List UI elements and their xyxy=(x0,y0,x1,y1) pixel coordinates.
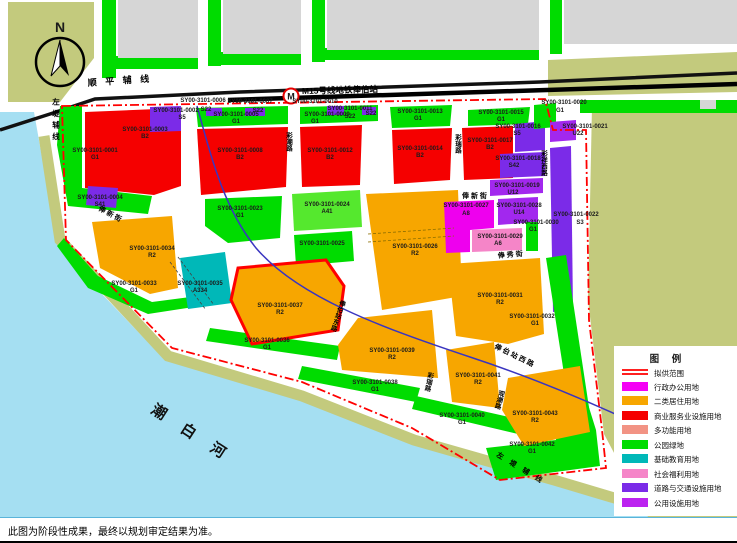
parcel-0029-code: SY00-3101-0029 xyxy=(477,234,523,240)
parcel-0003-type: B2 xyxy=(141,134,149,140)
compass-north-label: N xyxy=(55,19,65,35)
parcel-0039-code: SY00-3101-0039 xyxy=(369,348,415,354)
parcel-0011-type: S22 xyxy=(345,114,356,120)
legend-title: 图 例 xyxy=(650,353,687,365)
parcel-0038-type: G1 xyxy=(371,387,380,393)
parcel-0001-type: G1 xyxy=(91,155,100,161)
parcel-0020-code: SY00-3101-0020 xyxy=(541,100,587,106)
parcel-0024-type: A41 xyxy=(321,209,333,215)
parcel-0031-type: R2 xyxy=(496,300,504,306)
parcel-0043-code: SY00-3101-0043 xyxy=(512,411,558,417)
parcel-0037-type: R2 xyxy=(276,310,284,316)
parcel-0041-type: R2 xyxy=(474,380,482,386)
legend-item-label: 商业服务业设施用地 xyxy=(654,411,722,421)
city-block xyxy=(564,0,737,44)
parcel-0020-type: G1 xyxy=(556,108,565,114)
parcel-0030-type: G1 xyxy=(529,227,538,233)
legend: 图 例 拟供范围 行政办公用地 二类居住用地 商业服务业设施用地 多功能用地 公… xyxy=(614,346,737,516)
legend-item-label: 公园绿地 xyxy=(654,440,684,450)
parcel-0038-code: SY00-3101-0038 xyxy=(352,380,398,386)
parcel-0008-code: SY00-3101-0008 xyxy=(217,148,263,154)
legend-swatch xyxy=(622,440,648,449)
parcel-0004-code: SY00-3101-0004 xyxy=(77,195,123,201)
parcel-0023-code: SY00-3101-0023 xyxy=(217,206,263,212)
parcel-0034-type: R2 xyxy=(148,253,156,259)
parcel-0005-type: G1 xyxy=(232,119,241,125)
parcel-0023-type: G1 xyxy=(236,213,245,219)
legend-swatch xyxy=(622,454,648,463)
parcel-0016-code: SY00-3101-0016 xyxy=(495,124,541,130)
parcel-0012-type: B2 xyxy=(326,155,334,161)
parcel-0040-type: G1 xyxy=(458,420,467,426)
legend-item-label: 拟供范围 xyxy=(654,368,684,378)
parcel-0006-code: SY00-3101-0006 xyxy=(180,98,226,104)
parcel-0021-type: U22 xyxy=(572,131,584,137)
m15-station-label: M15号线地铁俸伯站 xyxy=(302,84,379,96)
planning-map-canvas: N M M15号线地铁俸伯站 顺 平 辅 线 左堤辅线 左 堤 辅 线 潮 白 … xyxy=(0,0,737,517)
legend-swatch xyxy=(622,483,648,492)
legend-swatch xyxy=(622,382,648,391)
parcel-0008 xyxy=(197,127,288,195)
disclaimer-note: 此图为阶段性成果，最终以规划审定结果为准。 xyxy=(0,517,737,543)
parcel-0035-type: A334 xyxy=(193,288,208,294)
s22-label-b: S22 xyxy=(253,108,264,114)
parcel-0008-type: B2 xyxy=(236,155,244,161)
city-block xyxy=(223,0,301,54)
legend-item-label: 社会福利用地 xyxy=(654,469,699,479)
parcel-0022-code: SY00-3101-0022 xyxy=(553,212,599,218)
parcel-0039-type: R2 xyxy=(388,355,396,361)
parcel-0009-type: G1 xyxy=(311,119,320,125)
parcel-0029-type: A6 xyxy=(494,241,502,247)
parcel-0037-code: SY00-3101-0037 xyxy=(257,303,303,309)
parcel-0034-code: SY00-3101-0034 xyxy=(129,246,175,252)
parcel-0025-code: SY00-3101-0025 xyxy=(299,241,345,247)
parcel-0018-type: S42 xyxy=(509,163,520,169)
parcel-0007-code: SY00-3101-0007 xyxy=(227,99,273,105)
legend-item-label: 基础教育用地 xyxy=(654,454,699,464)
city-block xyxy=(118,0,198,58)
block-green-edge xyxy=(550,0,562,54)
city-block xyxy=(700,100,716,109)
parcel-0031-code: SY00-3101-0031 xyxy=(477,293,523,299)
parcel-0010-code: SY00-3101-0010 xyxy=(292,99,338,105)
parcel-0032-code: SY00-3101-0032 xyxy=(509,314,555,320)
parcel-0032-type: G1 xyxy=(531,321,540,327)
parcel-0042-type: G1 xyxy=(528,449,537,455)
parcel-0036-code: SY00-3101-0036 xyxy=(244,338,290,344)
legend-item-label: 多功能用地 xyxy=(654,425,692,435)
parcel-0017-code: SY00-3101-0017 xyxy=(467,138,513,144)
parcel-0013-code: SY00-3101-0013 xyxy=(397,109,443,115)
s22-label-a: S22 xyxy=(201,107,212,113)
s22-label-c: S22 xyxy=(366,111,377,117)
parcel-0033-code: SY00-3101-0033 xyxy=(111,281,157,287)
parcel-0019-code: SY00-3101-0019 xyxy=(494,183,540,189)
parcel-0019-type: U12 xyxy=(507,190,519,196)
parcel-0036-type: G1 xyxy=(263,345,272,351)
parcel-0009-code: SY00-3101-0009 xyxy=(304,112,350,118)
legend-swatch xyxy=(622,469,648,478)
parcel-0024-code: SY00-3101-0024 xyxy=(304,202,350,208)
parcel-0015-code: SY00-3101-0015 xyxy=(478,110,524,116)
legend-swatch xyxy=(622,411,648,420)
parcel-0027-code: SY00-3101-0027 xyxy=(443,203,489,209)
parcel-0018-code: SY00-3101-0018 xyxy=(495,156,541,162)
planning-map: N M M15号线地铁俸伯站 顺 平 辅 线 左堤辅线 左 堤 辅 线 潮 白 … xyxy=(0,0,737,517)
parcel-0028-code: SY00-3101-0028 xyxy=(496,203,542,209)
street-zuodi-top: 左堤辅线 xyxy=(51,97,60,144)
legend-swatch xyxy=(622,396,648,405)
legend-item-label: 道路与交通设施用地 xyxy=(654,483,722,493)
parcel-0035-code: SY00-3101-0035 xyxy=(177,281,223,287)
parcel-0003-code: SY00-3101-0003 xyxy=(122,127,168,133)
parcel-0028-type: U14 xyxy=(513,210,525,216)
parcel-0042-code: SY00-3101-0042 xyxy=(509,442,555,448)
parcel-0021-code: SY00-3101-0021 xyxy=(562,124,608,130)
parcel-0027-type: A8 xyxy=(462,211,470,217)
parcel-0041-code: SY00-3101-0041 xyxy=(455,373,501,379)
parcel-0043-type: R2 xyxy=(531,418,539,424)
parcel-0029 xyxy=(472,228,522,252)
parcel-0017-type: B2 xyxy=(486,145,494,151)
city-block xyxy=(327,0,539,50)
legend-swatch xyxy=(622,425,648,434)
parcel-0002-type: S5 xyxy=(178,115,186,121)
parcel-0016-type: S5 xyxy=(513,131,521,137)
parcel-0015-type: G1 xyxy=(497,117,506,123)
street-fengxin-right: 俸 新 街 xyxy=(461,191,487,200)
parcel-0013-type: G1 xyxy=(414,116,423,122)
legend-item-label: 公用设施用地 xyxy=(654,498,699,508)
parcel-0002-code: SY00-3101-0002 xyxy=(153,108,199,114)
parcel-0026-code: SY00-3101-0026 xyxy=(392,244,438,250)
parcel-0014-code: SY00-3101-0014 xyxy=(397,146,443,152)
parcel-0033-type: G1 xyxy=(130,288,139,294)
parcel-0040-code: SY00-3101-0040 xyxy=(439,413,485,419)
legend-item-label: 行政办公用地 xyxy=(654,382,699,392)
parcel-0037-highlighted xyxy=(231,260,344,344)
parcel-0030-code: SY00-3101-0030 xyxy=(513,220,559,226)
parcel-0004-type: S41 xyxy=(95,202,106,208)
parcel-0014-type: B2 xyxy=(416,153,424,159)
parcel-0026-type: R2 xyxy=(411,251,419,257)
parcel-0022-type: S3 xyxy=(576,220,584,226)
parcel-0001-code: SY00-3101-0001 xyxy=(72,148,118,154)
legend-item-label: 二类居住用地 xyxy=(654,396,699,406)
parcel-0012-code: SY00-3101-0012 xyxy=(307,148,353,154)
legend-swatch xyxy=(622,498,648,507)
